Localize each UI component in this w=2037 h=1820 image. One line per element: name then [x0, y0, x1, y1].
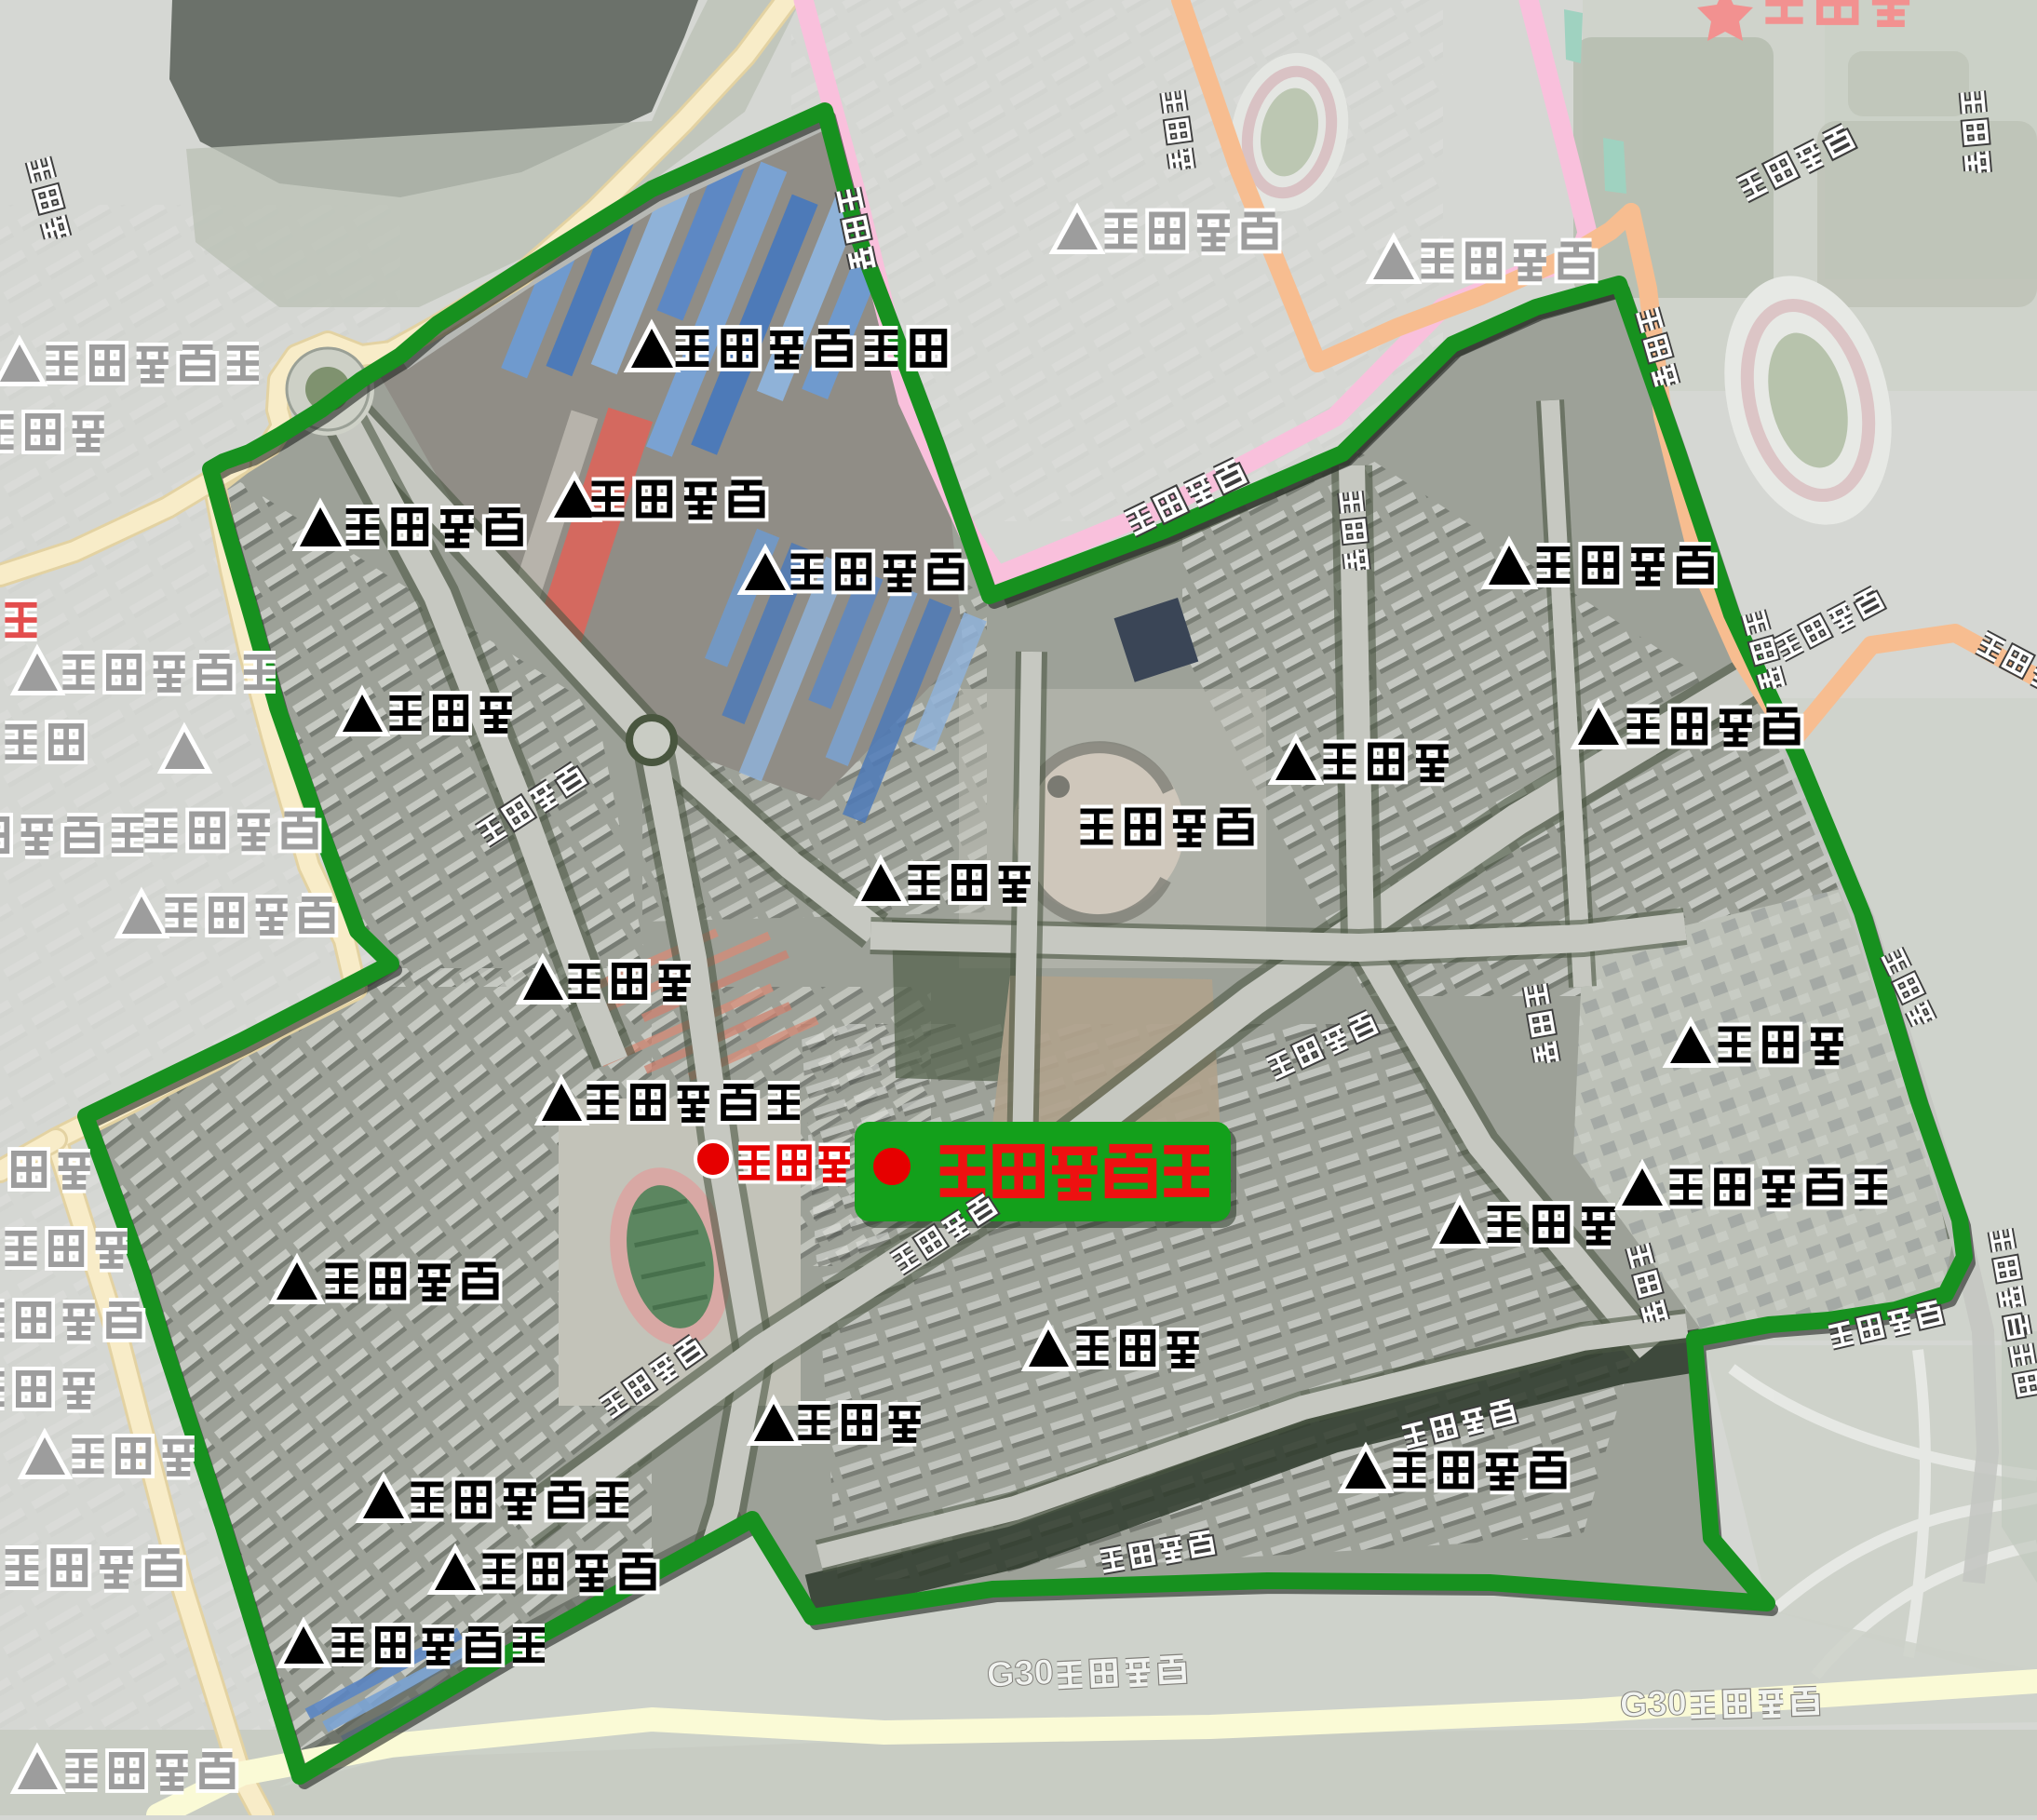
svg-text:G30: G30	[986, 1652, 1055, 1695]
svg-text:G30: G30	[1619, 1684, 1687, 1725]
